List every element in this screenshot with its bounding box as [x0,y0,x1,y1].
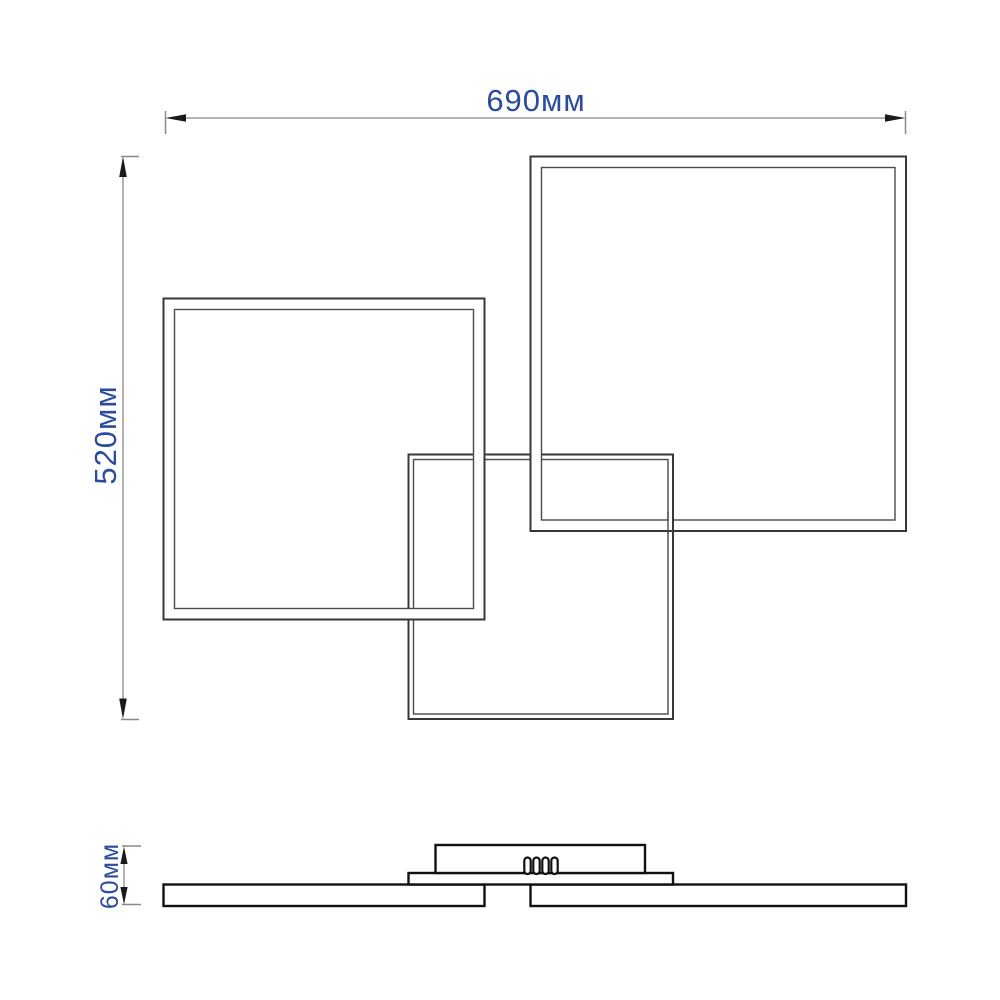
side-view [164,845,907,906]
clip-icon [551,858,557,875]
arrow-up-icon [119,157,127,178]
patch-white [669,516,673,529]
ceiling-lamp-dimension-drawing: 690мм 520мм 60мм [0,0,1000,1000]
frame-band-fill [531,157,907,532]
profile-bar-right [531,885,907,907]
dimension-drawing-canvas: 690мм 520мм 60мм [0,0,1000,1000]
clip-icon [542,858,548,875]
arrow-down-icon [119,699,127,720]
clip-icon [524,858,530,875]
profile-middle-plate [409,873,674,885]
dim-width: 690мм [166,83,906,134]
arrow-left-icon [166,114,187,122]
dim-thickness: 60мм [96,843,141,909]
dim-width-label: 690мм [486,83,585,118]
frame-square-top-right [531,157,907,532]
frame-inner-outline [542,168,896,521]
plan-view [164,157,907,720]
frame-outer-outline [531,157,907,532]
dim-thickness-label: 60мм [96,843,124,909]
profile-bar-left [164,885,485,907]
dim-height: 520мм [88,157,139,720]
clip-icon [533,858,539,875]
dim-height-label: 520мм [88,385,123,484]
arrow-right-icon [885,114,906,122]
